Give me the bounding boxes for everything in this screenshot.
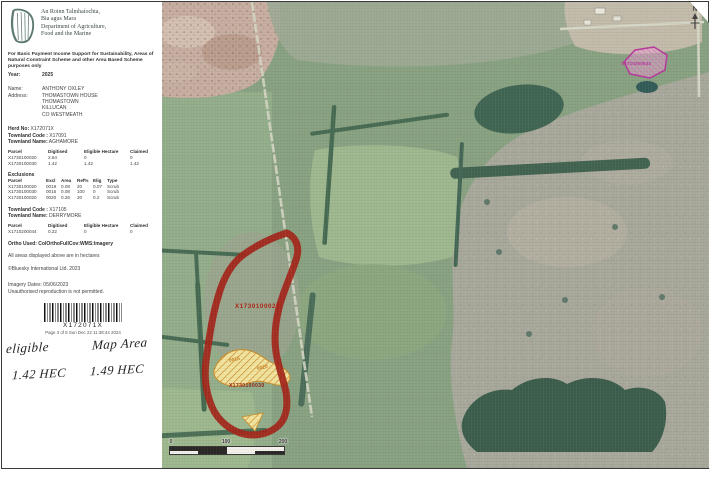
herd-no-label: Herd No:: [8, 126, 29, 132]
year-label: Year:: [8, 72, 42, 78]
scale-bar: 0 100 200: [169, 439, 289, 455]
centre-field: [310, 145, 462, 265]
table-cell: 1.42: [130, 161, 154, 167]
aerial-terrain-graphic: [147, 2, 709, 468]
agency-header: An Roinn Talmhaíochta, Bia agus Mara Dep…: [8, 7, 158, 45]
table-cell: 0020: [46, 195, 61, 201]
scale-bar-graphic: [169, 446, 285, 455]
table-cell: 0: [130, 229, 154, 235]
table-cell: 20: [77, 195, 93, 201]
north-arrow-icon: [689, 13, 701, 30]
agency-name-english-1: Department of Agriculture,: [41, 24, 106, 31]
harp-logo-icon: [8, 7, 36, 45]
north-arrow: N: [688, 6, 702, 35]
info-panel: An Roinn Talmhaíochta, Bia agus Mara Dep…: [2, 2, 162, 468]
building: [595, 8, 605, 14]
year-row: Year: 2025: [8, 72, 158, 78]
agency-name-irish-2: Bia agus Mara: [41, 16, 106, 23]
ortho-used-note: Ortho Used: ColOrthoFullCov:WMS:Imagery: [8, 241, 158, 247]
building: [584, 20, 591, 25]
applicant-block: Name: ANTHONY OXLEY Address: THOMASTOWN …: [8, 86, 158, 118]
townland-code-value: X17105: [49, 207, 66, 213]
agency-name-english-2: Food and the Marine: [41, 31, 106, 38]
reproduction-note: Unauthorised reproduction is not permitt…: [8, 289, 158, 295]
parcel-label-main: X1730100020: [235, 304, 280, 310]
year-value: 2025: [42, 72, 53, 78]
townland1-name-row: Townland Name: AGHAMORE: [8, 139, 158, 145]
table-cell: 0.2: [93, 195, 107, 201]
townland-code-label: Townland Code :: [8, 133, 48, 139]
townland2-name-row: Townland Name: DERRYMORE: [8, 213, 158, 219]
table-cell: 1.42: [84, 161, 130, 167]
herd-block: Herd No: X172071X Townland Code : X17091…: [8, 126, 158, 145]
hectares-note: All areas displayed above are in hectare…: [8, 253, 158, 259]
townland-name-value: DERRYMORE: [49, 213, 81, 219]
townland-code-value: X17091: [49, 133, 66, 139]
purpose-text: For Basic Payment Income Support for Sus…: [8, 52, 160, 70]
parcel-table-1: Parcel Digitised Eligible Hectare Claime…: [8, 149, 158, 166]
scale-tick-100: 100: [222, 439, 230, 445]
scale-tick-200: 200: [279, 439, 287, 445]
townland-name-value: AGHAMORE: [49, 139, 78, 145]
agency-name-irish-1: An Roinn Talmhaíochta,: [41, 9, 106, 16]
table-cell: 0.22: [48, 229, 84, 235]
scale-tick-0: 0: [170, 439, 173, 445]
table-cell: 1.42: [48, 161, 84, 167]
neighbour-parcel-label: X1710200044: [621, 63, 651, 68]
barcode: [44, 303, 122, 322]
building: [613, 16, 621, 21]
parcel-label-sub: X1730100030: [229, 384, 265, 389]
scanned-document-page: X1730100020 X1730100030 0015 0020 X17102…: [1, 1, 709, 469]
table-cell: Scrub: [107, 195, 124, 201]
parcel-table-2: Parcel Digitised Eligible Hectare Claime…: [8, 223, 158, 235]
handwritten-annotation: eligible Map Area 1.42 HEC 1.49 HEC: [8, 341, 158, 401]
townland-name-label: Townland Name:: [8, 213, 48, 219]
lower-field: [297, 264, 447, 360]
table-cell: 0.26: [61, 195, 77, 201]
townland-name-label: Townland Name:: [8, 139, 48, 145]
table-cell: X1710200044: [8, 229, 48, 235]
copyright-note: ©Bluesky International Ltd. 2023: [8, 266, 158, 272]
herd-no-value: X172071X: [31, 126, 54, 132]
handwritten-area-1: 1.42 HEC: [12, 369, 66, 378]
barcode-value: X172071X: [8, 323, 158, 329]
table-cell: 0: [84, 229, 130, 235]
townland-code-label: Townland Code :: [8, 207, 48, 213]
handwritten-eligible: eligible: [6, 344, 49, 353]
pond: [636, 81, 658, 93]
agency-name: An Roinn Talmhaíochta, Bia agus Mara Dep…: [41, 7, 106, 39]
address-line-4: CO WESTMEATH: [42, 112, 82, 118]
table-cell: X1730100030: [8, 161, 48, 167]
exclusions-table: Parcel Excl Area Ref% Elig Type X1730100…: [8, 178, 158, 200]
north-label: N: [688, 6, 702, 13]
handwritten-area-2: 1.49 HEC: [90, 365, 144, 374]
address-row: CO WESTMEATH: [8, 112, 158, 118]
barcode-block: X172071X Page 3 of 5 Sun Dec 22 11:38:44…: [8, 303, 158, 337]
handwritten-map-area: Map Area: [92, 339, 148, 348]
townland2-block: Townland Code : X17105 Townland Name: DE…: [8, 207, 158, 220]
table-cell: X1730100020: [8, 195, 46, 201]
aerial-map: X1730100020 X1730100030 0015 0020 X17102…: [147, 2, 709, 468]
